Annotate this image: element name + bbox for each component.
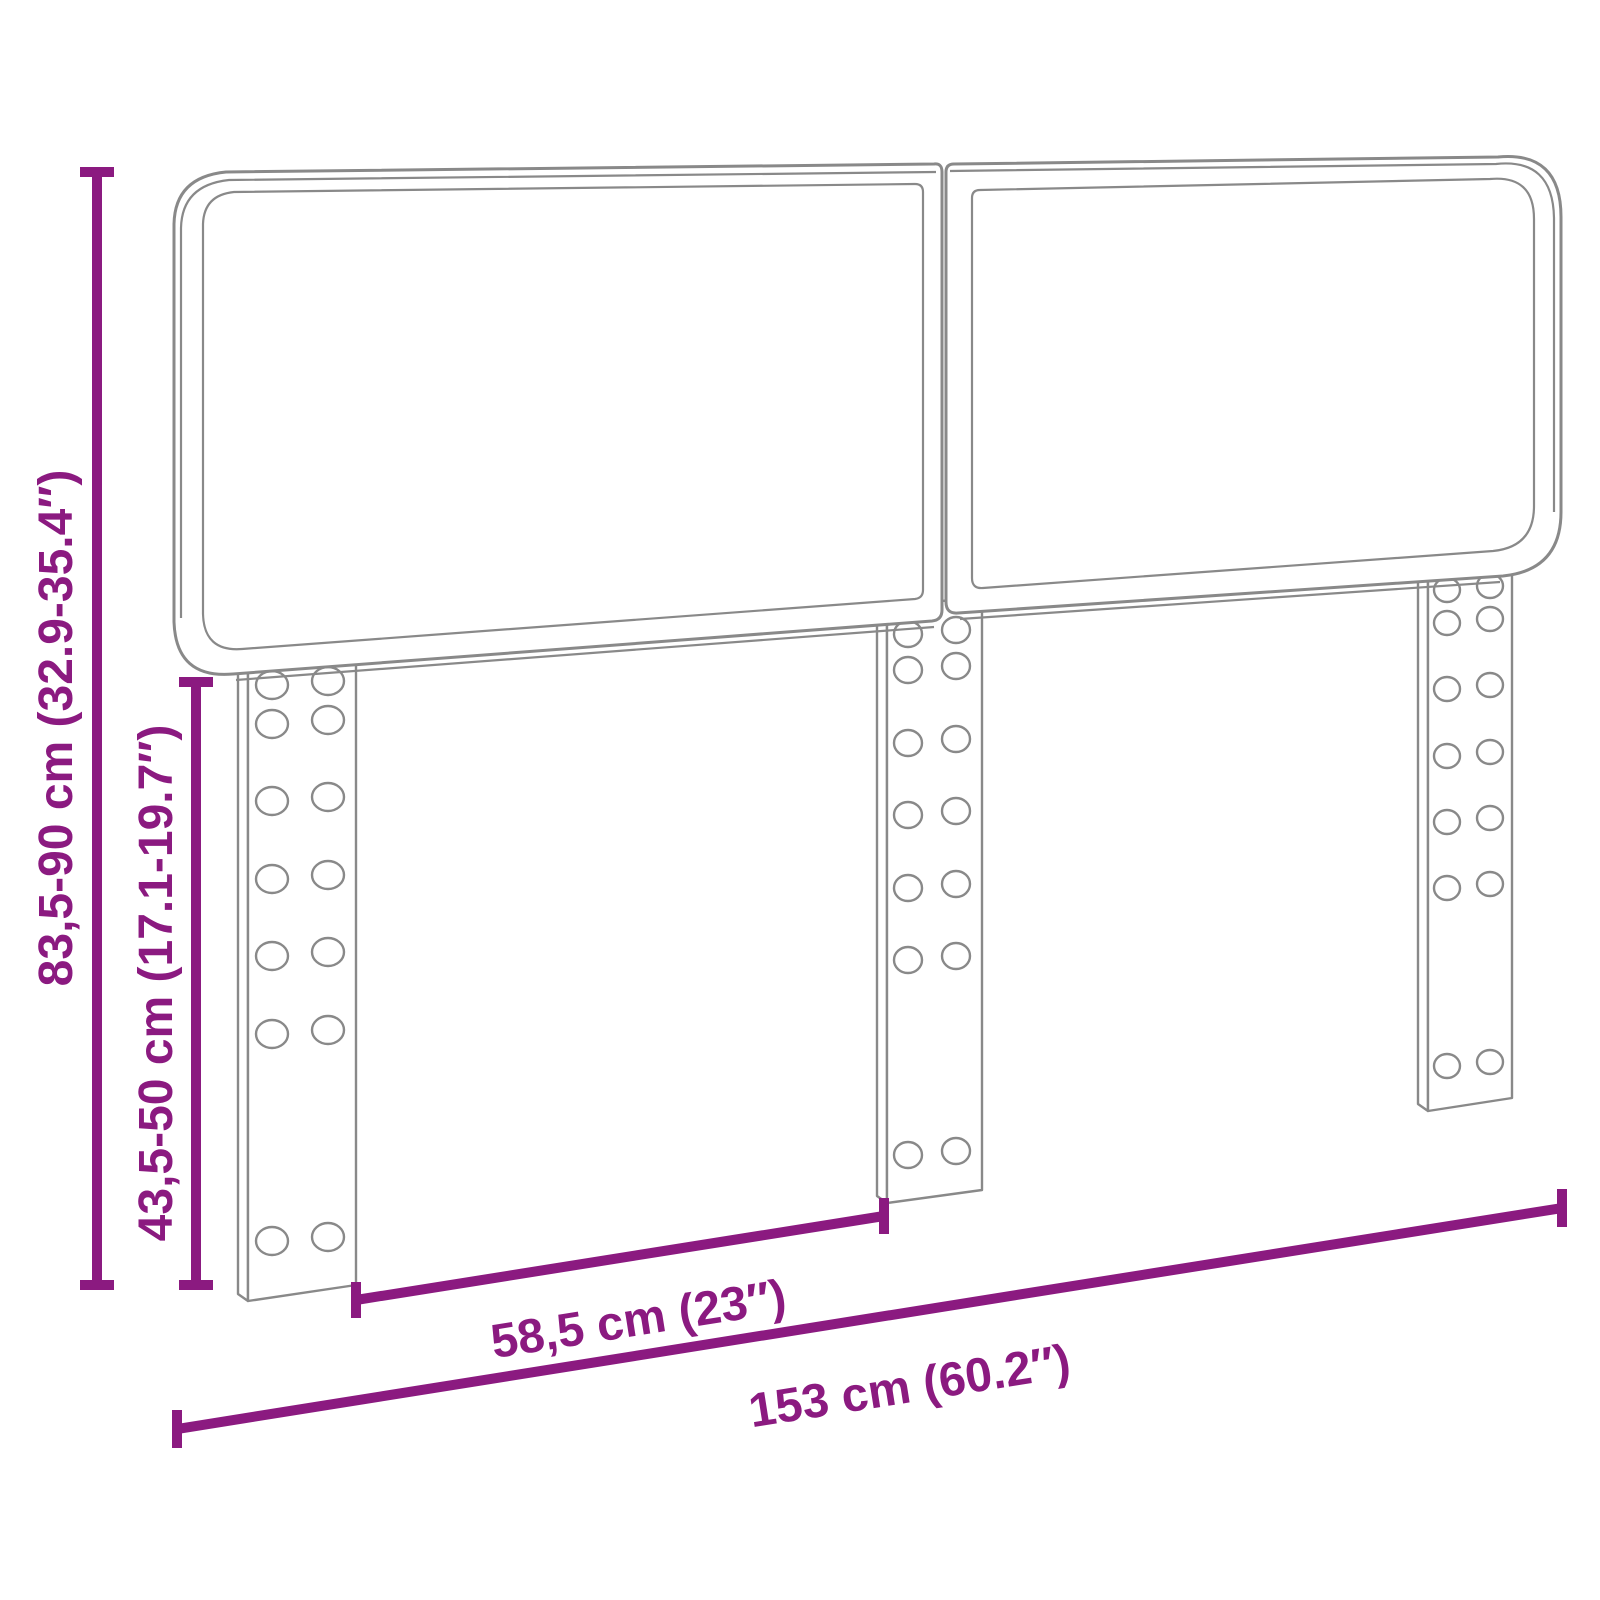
screw-hole <box>256 671 288 699</box>
screw-hole <box>1434 677 1460 701</box>
screw-hole <box>942 871 970 897</box>
leg-front-face <box>1428 558 1512 1111</box>
dim-overall-width: 153 cm (60.2″) <box>177 1189 1562 1448</box>
screw-hole <box>894 875 922 901</box>
screw-hole <box>1477 673 1503 697</box>
screw-hole <box>1477 740 1503 764</box>
screw-hole <box>256 865 288 893</box>
screw-hole <box>1477 1050 1503 1074</box>
screw-hole <box>894 1142 922 1168</box>
dim-partial-width: 58,5 cm (23″) <box>356 1198 884 1369</box>
screw-hole <box>1434 744 1460 768</box>
screw-hole <box>312 938 344 966</box>
screw-hole <box>894 947 922 973</box>
headboard-panel-right <box>946 157 1561 620</box>
screw-hole <box>256 710 288 738</box>
mounting-leg-right <box>1418 558 1512 1111</box>
panel-outline <box>174 164 942 675</box>
screw-hole <box>894 657 922 683</box>
panel-outline <box>946 157 1561 614</box>
screw-hole <box>1477 806 1503 830</box>
screw-hole <box>894 730 922 756</box>
screw-hole <box>256 942 288 970</box>
dimension-label-overall-width: 153 cm (60.2″) <box>745 1335 1074 1438</box>
screw-hole <box>256 787 288 815</box>
screw-hole <box>1434 611 1460 635</box>
dim-leg-height: 43,5-50 cm (17.1-19.7″) <box>130 682 213 1285</box>
screw-hole <box>942 943 970 969</box>
screw-hole <box>942 653 970 679</box>
screw-hole <box>312 783 344 811</box>
screw-hole <box>312 706 344 734</box>
headboard-panel-left <box>174 164 942 680</box>
screw-hole <box>1434 1054 1460 1078</box>
leg-side-face <box>1418 565 1428 1111</box>
screw-hole <box>1477 872 1503 896</box>
screw-hole <box>312 861 344 889</box>
screw-hole <box>1434 810 1460 834</box>
screw-hole <box>894 802 922 828</box>
screw-hole <box>312 1016 344 1044</box>
dimension-label-overall-height: 83,5-90 cm (32.9-35.4″) <box>30 470 83 987</box>
dim-overall-height: 83,5-90 cm (32.9-35.4″) <box>30 172 114 1285</box>
leg-side-face <box>877 605 887 1203</box>
leg-side-face <box>238 657 248 1301</box>
leg-front-face <box>248 648 356 1301</box>
screw-hole <box>256 1020 288 1048</box>
headboard-dimension-diagram: 83,5-90 cm (32.9-35.4″) 43,5-50 cm (17.1… <box>0 0 1600 1600</box>
screw-hole <box>256 1227 288 1255</box>
mounting-leg-middle <box>877 598 982 1203</box>
screw-hole <box>942 1138 970 1164</box>
dimension-line <box>356 1216 884 1300</box>
diagram-canvas: 83,5-90 cm (32.9-35.4″) 43,5-50 cm (17.1… <box>0 0 1600 1600</box>
screw-hole <box>942 798 970 824</box>
screw-hole <box>942 726 970 752</box>
screw-hole <box>942 617 970 643</box>
dimension-label-leg-height: 43,5-50 cm (17.1-19.7″) <box>130 725 183 1242</box>
screw-hole <box>1434 876 1460 900</box>
mounting-leg-left <box>238 648 356 1301</box>
screw-hole <box>312 1223 344 1251</box>
screw-hole <box>1477 607 1503 631</box>
